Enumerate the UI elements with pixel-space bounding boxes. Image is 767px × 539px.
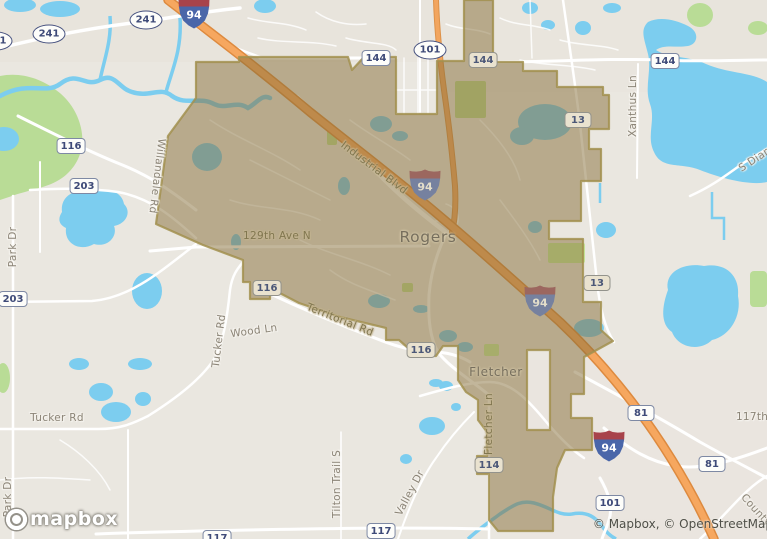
route-shield-81: 81 — [699, 456, 726, 472]
route-shield-number: 94 — [186, 9, 201, 22]
route-shield-241: 241 — [0, 32, 13, 51]
route-shield-number: 116 — [61, 141, 82, 152]
road-label: 129th Ave N — [243, 230, 311, 242]
route-shield-number: 101 — [420, 45, 441, 56]
route-shield-number: 241 — [39, 29, 60, 40]
route-shield-116: 116 — [253, 280, 282, 296]
mapbox-logo[interactable]: mapbox — [6, 508, 118, 530]
route-shield-116: 116 — [57, 138, 86, 154]
route-shield-81: 81 — [628, 405, 655, 421]
route-shield-number: 203 — [74, 181, 95, 192]
route-shield-241: 241 — [130, 11, 163, 30]
route-shield-number: 94 — [532, 297, 547, 310]
route-shield-94: 94 — [410, 170, 441, 201]
route-shield-number: 144 — [655, 56, 676, 67]
route-shield-203: 203 — [0, 291, 27, 307]
route-shield-number: 241 — [0, 36, 6, 47]
mapbox-wordmark: mapbox — [30, 508, 118, 530]
road-label: Wood Ln — [230, 322, 278, 340]
road-label: Xanthus Ln — [627, 75, 639, 137]
map-canvas[interactable]: 2412412411019494949414414414413131162032… — [0, 0, 767, 539]
route-shield-number: 94 — [601, 442, 616, 455]
route-shield-241: 241 — [33, 25, 66, 44]
route-shield-number: 117 — [371, 526, 392, 537]
route-shield-117: 117 — [367, 523, 396, 539]
route-shield-number: 13 — [590, 278, 604, 289]
road-label: Industrial Blvd — [338, 139, 409, 197]
labels-layer: 2412412411019494949414414414413131162032… — [0, 0, 767, 539]
road-label: Willandale Rd — [146, 138, 167, 215]
route-shield-144: 144 — [469, 52, 498, 68]
route-shield-number: 81 — [705, 459, 719, 470]
route-shield-117: 117 — [203, 530, 232, 539]
city-label-fletcher: Fletcher — [469, 365, 523, 379]
route-shield-number: 144 — [366, 53, 387, 64]
route-shield-114: 114 — [475, 457, 504, 473]
road-label: Tucker Rd — [210, 314, 228, 369]
road-label: Valley Dr — [393, 468, 427, 518]
route-shield-94: 94 — [179, 0, 210, 29]
road-label: Tilton Trail S — [331, 450, 343, 518]
route-shield-144: 144 — [651, 53, 680, 69]
route-shield-13: 13 — [565, 112, 592, 128]
route-shield-203: 203 — [70, 178, 99, 194]
route-shield-116: 116 — [407, 342, 436, 358]
road-label: Tucker Rd — [30, 412, 84, 424]
route-shield-number: 13 — [571, 115, 585, 126]
city-label-rogers: Rogers — [400, 228, 457, 246]
route-shield-101: 101 — [596, 495, 625, 511]
route-shield-number: 116 — [411, 345, 432, 356]
road-label: Park Dr — [7, 227, 19, 268]
route-shield-number: 203 — [3, 294, 24, 305]
route-shield-94: 94 — [525, 286, 556, 317]
route-shield-94: 94 — [594, 431, 625, 462]
map-attribution[interactable]: © Mapbox, © OpenStreetMap — [593, 517, 767, 531]
route-shield-number: 114 — [479, 460, 500, 471]
road-label: 117th Ave — [736, 411, 767, 423]
route-shield-number: 81 — [634, 408, 648, 419]
road-label: Fletcher Ln — [483, 393, 495, 455]
road-label: Territorial Rd — [305, 301, 375, 339]
route-shield-number: 116 — [257, 283, 278, 294]
route-shield-number: 117 — [207, 533, 228, 539]
road-label: County Rd — [738, 492, 767, 539]
route-shield-number: 94 — [417, 181, 432, 194]
route-shield-144: 144 — [362, 50, 391, 66]
road-label: S Diamond Lake Rd — [737, 106, 767, 175]
route-shield-number: 144 — [473, 55, 494, 66]
route-shield-13: 13 — [584, 275, 611, 291]
mapbox-logo-icon — [6, 509, 27, 530]
route-shield-101: 101 — [414, 41, 447, 60]
route-shield-number: 241 — [136, 15, 157, 26]
route-shield-number: 101 — [600, 498, 621, 509]
